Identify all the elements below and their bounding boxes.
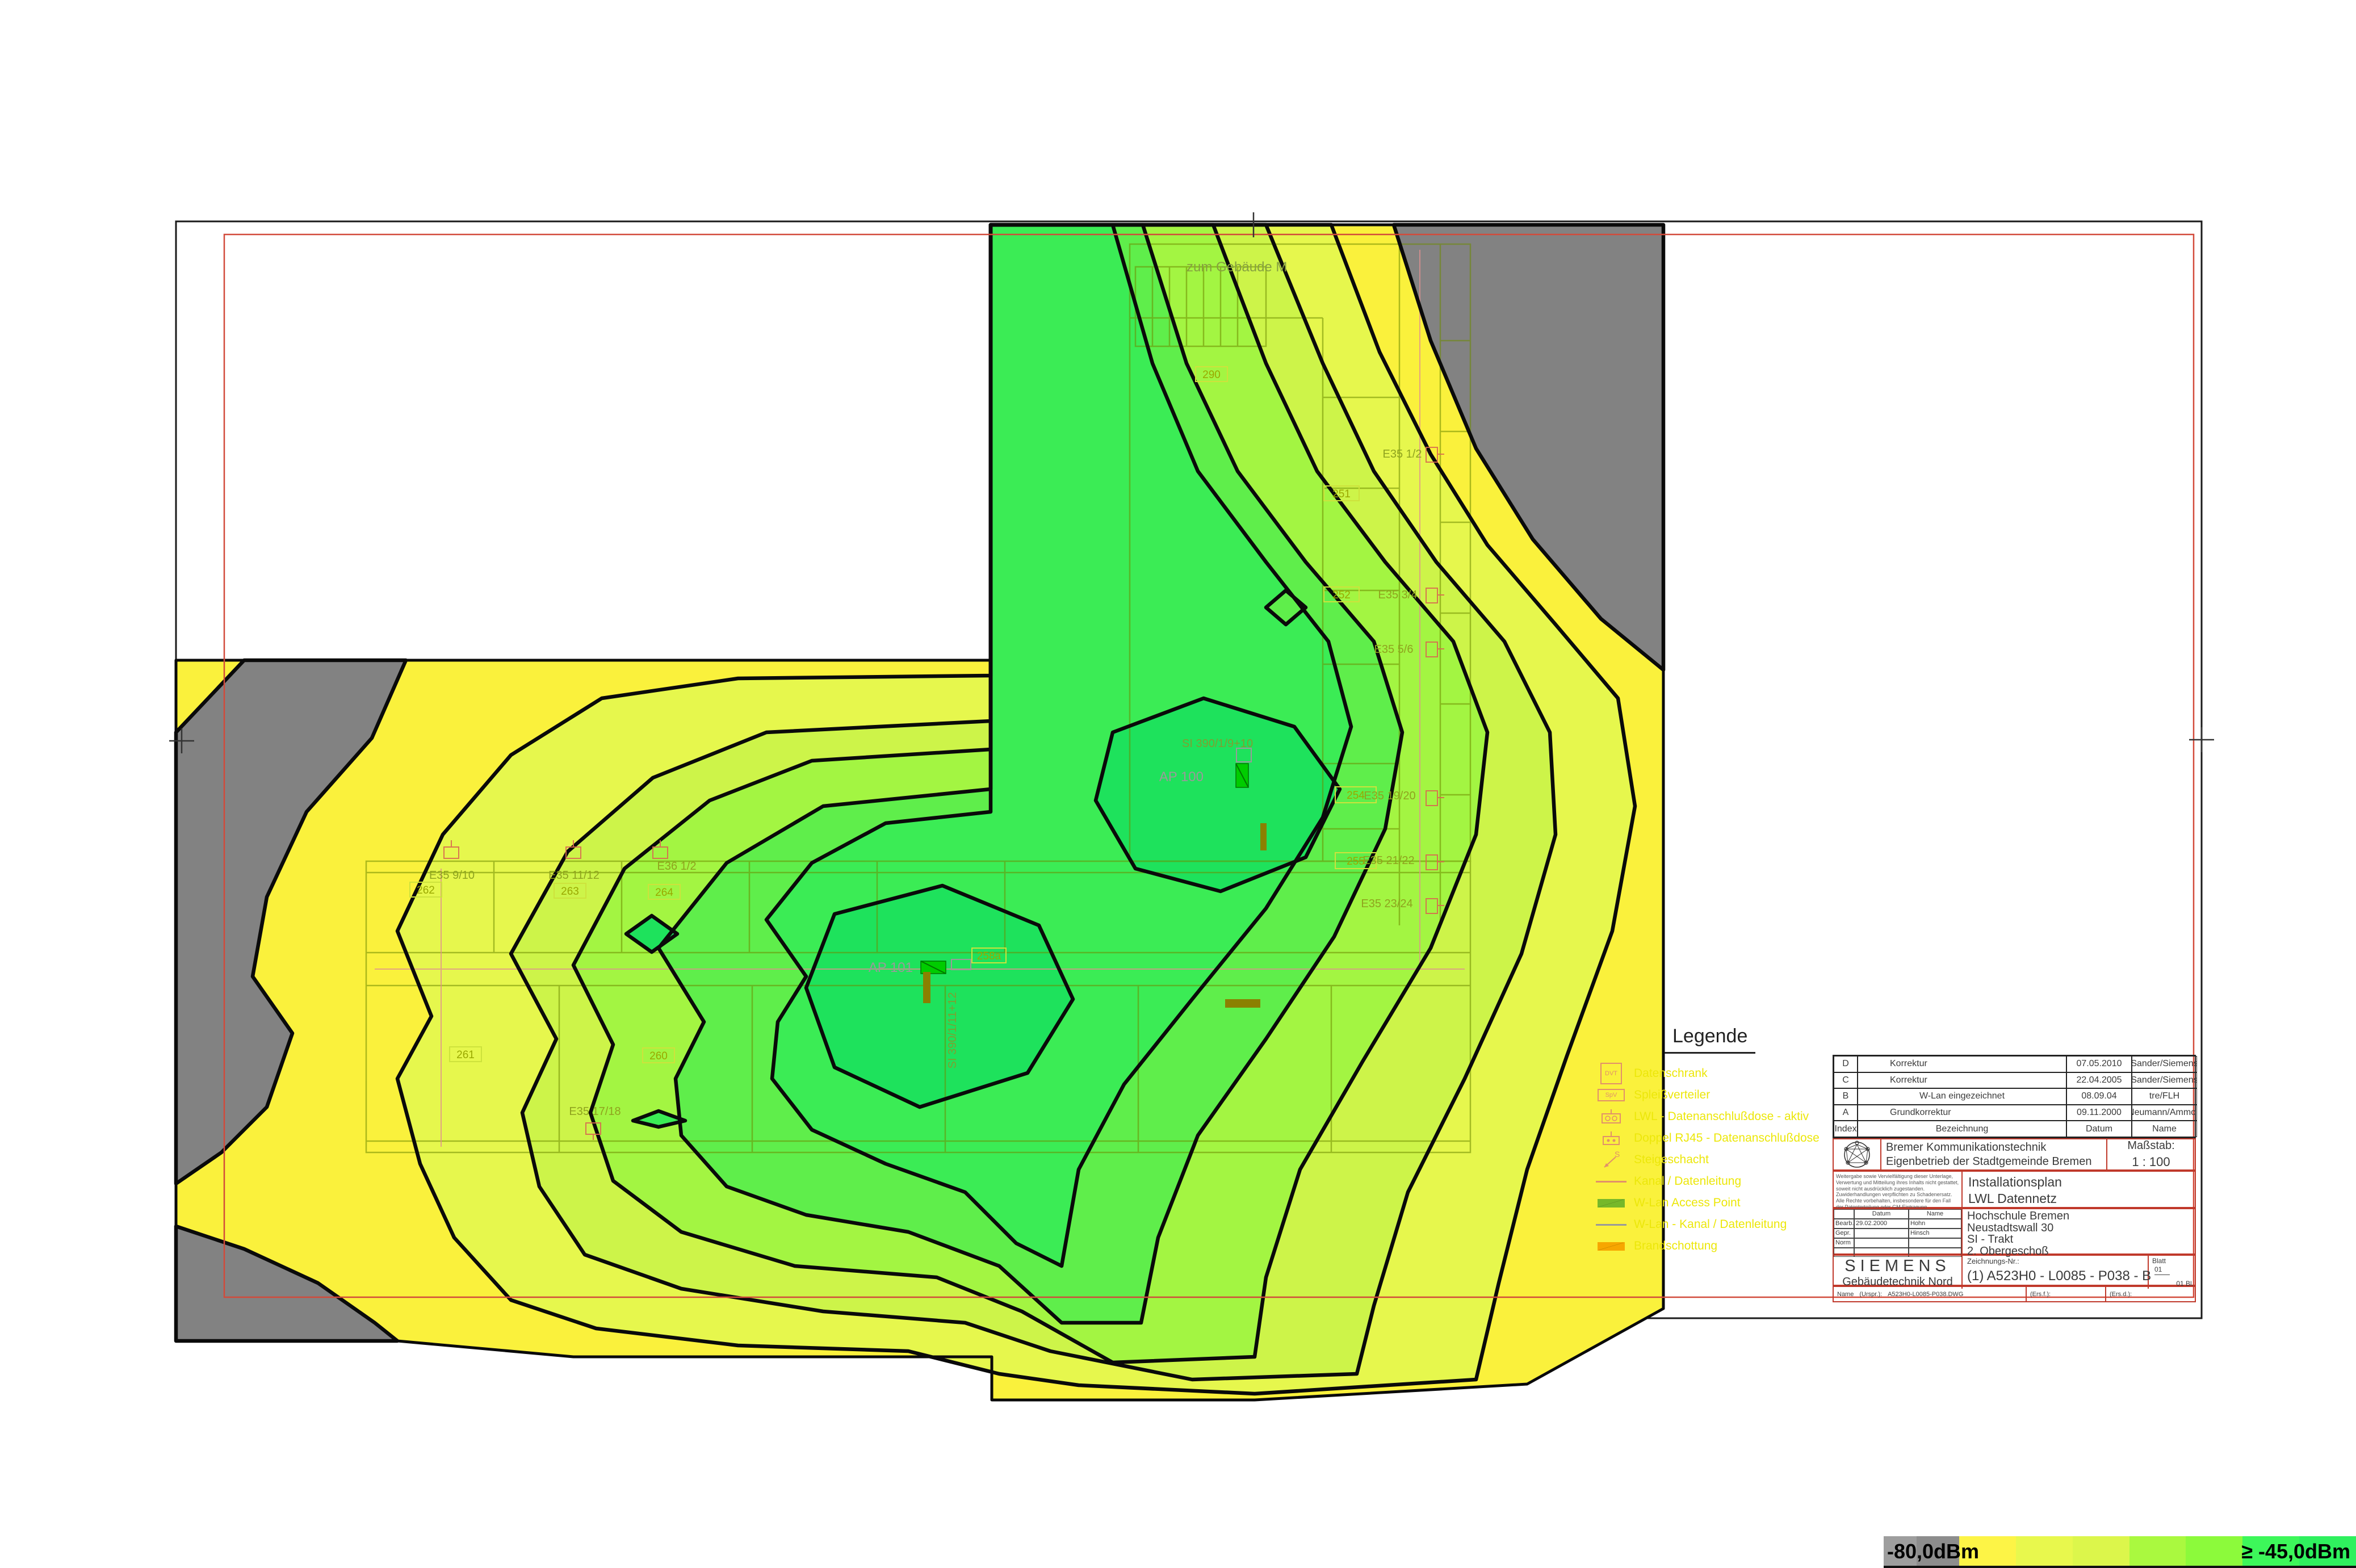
legend-item: W-Lan Access Point (1588, 1192, 1833, 1214)
legend-item-label: Doppel RJ45 - Datenanschlußdose (1634, 1131, 1820, 1145)
scale-max-label: ≥ -45,0dBm (2241, 1540, 2350, 1563)
project-line3: SI - Trakt (1967, 1234, 2196, 1246)
approval-row-datum: 29.02.2000 (1854, 1219, 1909, 1229)
legend-item: Kanal / Datenleitung (1588, 1171, 1833, 1192)
room-label: 258a (977, 950, 1001, 962)
company-line2: Eigenbetrieb der Stadtgemeinde Bremen (1886, 1155, 2106, 1169)
scale-min-label: -80,0dBm (1887, 1540, 1979, 1563)
riser-label: SI 390/1/9+10 (1182, 737, 1253, 750)
footer-ursp-value: A523H0-L0085-P038.DWG (1888, 1291, 1963, 1298)
outlet-label: E35 17/18 (569, 1105, 621, 1118)
siemens-logo-text: SIEMENS (1834, 1257, 1961, 1276)
revision-header-bezeichnung: Bezeichnung (1858, 1121, 2066, 1137)
legend-item: DVT Datenschrank (1588, 1063, 1833, 1084)
title-block: D Korrektur 07.05.2010 Sander/Siemens C … (1833, 1055, 2196, 1302)
revision-datum: 07.05.2010 (2066, 1056, 2132, 1072)
blatt-label: Blatt (2152, 1257, 2166, 1265)
approval-row-datum (1854, 1238, 1909, 1248)
outlet-label: E35 3/4 (1378, 589, 1418, 601)
project-line1: Hochschule Bremen (1967, 1210, 2196, 1222)
company-line1: Bremer Kommunikationstechnik (1886, 1141, 2106, 1155)
splice-distributor-icon: SpV (1598, 1089, 1625, 1101)
legend-item: SpV Spleißverteiler (1588, 1084, 1833, 1106)
revision-table: D Korrektur 07.05.2010 Sander/Siemens C … (1833, 1055, 2196, 1138)
scale-segment (2129, 1536, 2186, 1566)
revision-index: D (1834, 1056, 1858, 1072)
room-label: 260 (649, 1050, 668, 1062)
revision-index: A (1834, 1105, 1858, 1121)
revision-header-name: Name (2132, 1121, 2197, 1137)
company-logo-icon (1841, 1140, 1873, 1169)
masstab-label: Maßstab: (2127, 1139, 2174, 1152)
room-label: 255 (1347, 856, 1365, 867)
revision-header-index: Index (1834, 1121, 1858, 1137)
zeichnungsnr-value: (1) A523H0 - L0085 - P038 - B (1967, 1268, 2148, 1284)
room-label: 251 (1332, 488, 1351, 500)
legend-item: LWL - Datenanschlußdose - aktiv (1588, 1106, 1833, 1127)
legend-title: Legende (1665, 1025, 1755, 1054)
revision-datum: 22.04.2005 (2066, 1072, 2132, 1089)
lwl-outlet-icon (1599, 1108, 1624, 1125)
room-label: 262 (417, 884, 435, 896)
outlet-label: E36 1/2 (657, 860, 697, 873)
approval-row-name: Hohn (1909, 1219, 1961, 1229)
ap101-label: AP 101 (869, 960, 913, 975)
approval-row-label: Norm (1834, 1238, 1854, 1248)
project-line2: Neustadtswall 30 (1967, 1222, 2196, 1234)
data-cabinet-icon: DVT (1600, 1063, 1622, 1084)
wlan-heatmap-drawing: 290 251 252 254 255 258a 262 263 264 261… (0, 0, 2356, 1568)
legend-item-label: Spleißverteiler (1634, 1088, 1710, 1102)
approval-row-label: Gepr. (1834, 1229, 1854, 1238)
drawing-sheet: 290 251 252 254 255 258a 262 263 264 261… (0, 0, 2356, 1568)
footer-ersd-label: (Ers.d.): (2110, 1291, 2132, 1298)
revision-name: Neumann/Ammon (2132, 1105, 2197, 1121)
company-row: Bremer Kommunikationstechnik Eigenbetrie… (1833, 1138, 2196, 1171)
revision-name: Sander/Siemens (2132, 1072, 2197, 1089)
revision-name: Sander/Siemens (2132, 1056, 2197, 1072)
blatt-value: 01 (2154, 1265, 2170, 1275)
plan-title-line1: Installationsplan (1968, 1174, 2196, 1190)
footer-ursp-label: (Urspr.): (1859, 1291, 1882, 1298)
room-label: 254 (1347, 790, 1365, 802)
legend-item-label: W-Lan - Kanal / Datenleitung (1634, 1218, 1787, 1231)
scale-segment (2016, 1536, 2073, 1566)
revision-index: C (1834, 1072, 1858, 1089)
approval-row-name (1909, 1238, 1961, 1248)
revision-bezeichnung: Korrektur (1858, 1072, 2066, 1089)
outlet-label: E35 23/24 (1361, 898, 1412, 910)
firestop-icon (1598, 1242, 1625, 1251)
revision-bezeichnung: W-Lan eingezeichnet (1858, 1088, 2066, 1105)
scale-segment (2186, 1536, 2242, 1566)
access-point-icon (1598, 1199, 1625, 1208)
room-label: 263 (561, 886, 579, 898)
cable-duct-icon (1596, 1181, 1626, 1183)
room-label: 261 (456, 1049, 475, 1061)
revision-index: B (1834, 1088, 1858, 1105)
approval-row-name: Hinsch (1909, 1229, 1961, 1238)
legend-item: Brandschottung (1588, 1235, 1833, 1257)
room-label: 252 (1332, 589, 1351, 601)
legend-item-label: W-Lan Access Point (1634, 1196, 1741, 1210)
outlet-label: E35 9/10 (429, 869, 475, 882)
rj45-outlet-icon (1599, 1130, 1624, 1147)
revision-datum: 09.11.2000 (2066, 1105, 2132, 1121)
footer-name-label: Name (1837, 1291, 1854, 1298)
approval-row-label: Bearb. (1834, 1219, 1854, 1229)
plan-title-line2: LWL Datennetz (1968, 1190, 2196, 1207)
approval-name-header: Name (1909, 1209, 1961, 1219)
outlet-label: E35 21/22 (1363, 854, 1414, 867)
approval-datum-header: Datum (1854, 1209, 1909, 1219)
riser-shaft-icon: S (1599, 1150, 1624, 1169)
legend: Legende DVT Datenschrank SpV Spleißverte… (1588, 1025, 1833, 1257)
signal-scale-bar: -80,0dBm ≥ -45,0dBm (1884, 1536, 2356, 1568)
legend-item: S Steigeschacht (1588, 1149, 1833, 1171)
room-label: 264 (655, 887, 673, 899)
ap100-label: AP 100 (1159, 769, 1204, 785)
wlan-duct-icon (1596, 1224, 1626, 1226)
project-address: Hochschule Bremen Neustadtswall 30 SI - … (1963, 1209, 2196, 1257)
outlet-label: E35 1/2 (1383, 448, 1422, 460)
revision-header-datum: Datum (2066, 1121, 2132, 1137)
legend-item-label: LWL - Datenanschlußdose - aktiv (1634, 1110, 1809, 1123)
legend-item-label: Datenschrank (1634, 1067, 1708, 1080)
riser-label: SI 390/1/11+12 (946, 992, 959, 1069)
revision-bezeichnung: Grundkorrektur (1858, 1105, 2066, 1121)
scale-segment (2073, 1536, 2129, 1566)
outlet-label: E35 19/20 (1364, 790, 1415, 802)
revision-name: tre/FLH (2132, 1088, 2197, 1105)
disclaimer-text: Weitergabe sowie Vervielfältigung dieser… (1834, 1172, 1963, 1212)
masstab-value: 1 : 100 (2132, 1155, 2170, 1169)
outlet-label: E35 5/6 (1374, 643, 1414, 656)
revision-bezeichnung: Korrektur (1858, 1056, 2066, 1072)
legend-item: W-Lan - Kanal / Datenleitung (1588, 1214, 1833, 1235)
outlet-label: E35 11/12 (548, 869, 600, 882)
titleblock-footer: Name (Urspr.): A523H0-L0085-P038.DWG (Er… (1833, 1286, 2196, 1302)
legend-item-label: Kanal / Datenleitung (1634, 1175, 1741, 1188)
siemens-row: SIEMENS Gebäudetechnik Nord Zeichnungs-N… (1833, 1255, 2196, 1286)
legend-item-label: Brandschottung (1634, 1239, 1717, 1253)
approval-table: Datum Name Bearb. 29.02.2000 Hohn Gepr. … (1834, 1209, 1963, 1257)
disclaimer-plan-row: Weitergabe sowie Vervielfältigung dieser… (1833, 1171, 2196, 1208)
room-label: 290 (1202, 369, 1221, 381)
approval-project-row: Datum Name Bearb. 29.02.2000 Hohn Gepr. … (1833, 1208, 2196, 1255)
legend-item-label: Steigeschacht (1634, 1153, 1709, 1167)
revision-datum: 08.09.04 (2066, 1088, 2132, 1105)
approval-row-datum (1854, 1229, 1909, 1238)
footer-ersf-label: (Ers.f.): (2030, 1291, 2051, 1298)
zeichnungsnr-label: Zeichnungs-Nr.: (1967, 1257, 2148, 1265)
legend-item: Doppel RJ45 - Datenanschlußdose (1588, 1127, 1833, 1149)
zum-gebaeude-label: zum Gebäude M (1187, 259, 1287, 275)
